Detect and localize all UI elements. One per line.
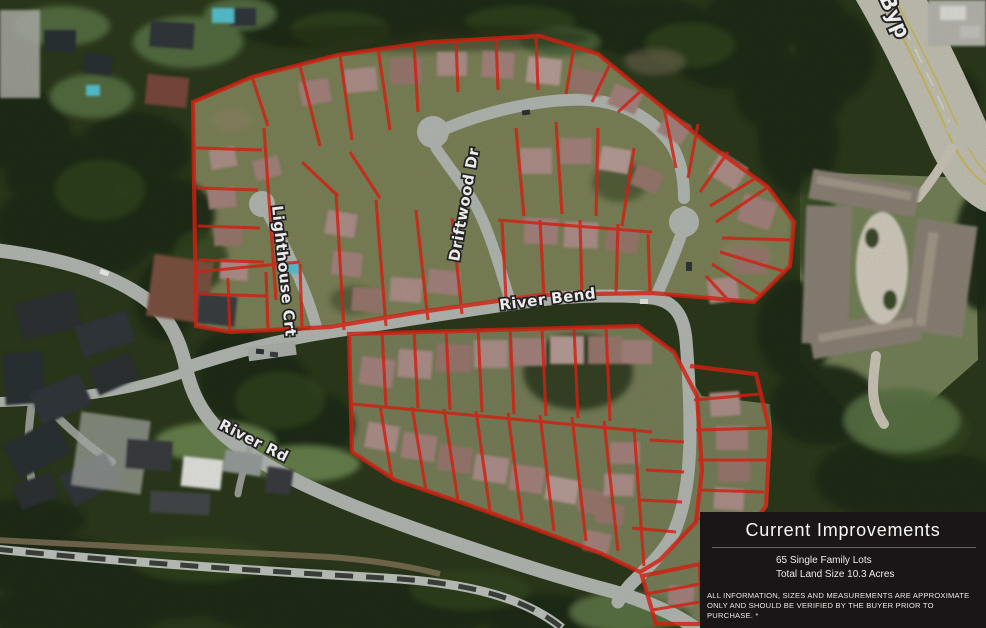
panel-divider (712, 547, 976, 548)
panel-title: Current Improvements (700, 520, 986, 541)
aerial-map: Driftwood Dr Lighthouse Crt River Bend R… (0, 0, 986, 628)
lot-count-line: 65 Single Family Lots (776, 554, 986, 568)
info-panel: Current Improvements 65 Single Family Lo… (700, 512, 986, 628)
land-size-line: Total Land Size 10.3 Acres (776, 568, 986, 582)
panel-disclaimer: ALL INFORMATION, SIZES AND MEASUREMENTS … (707, 591, 980, 621)
panel-details: 65 Single Family Lots Total Land Size 10… (700, 554, 986, 582)
